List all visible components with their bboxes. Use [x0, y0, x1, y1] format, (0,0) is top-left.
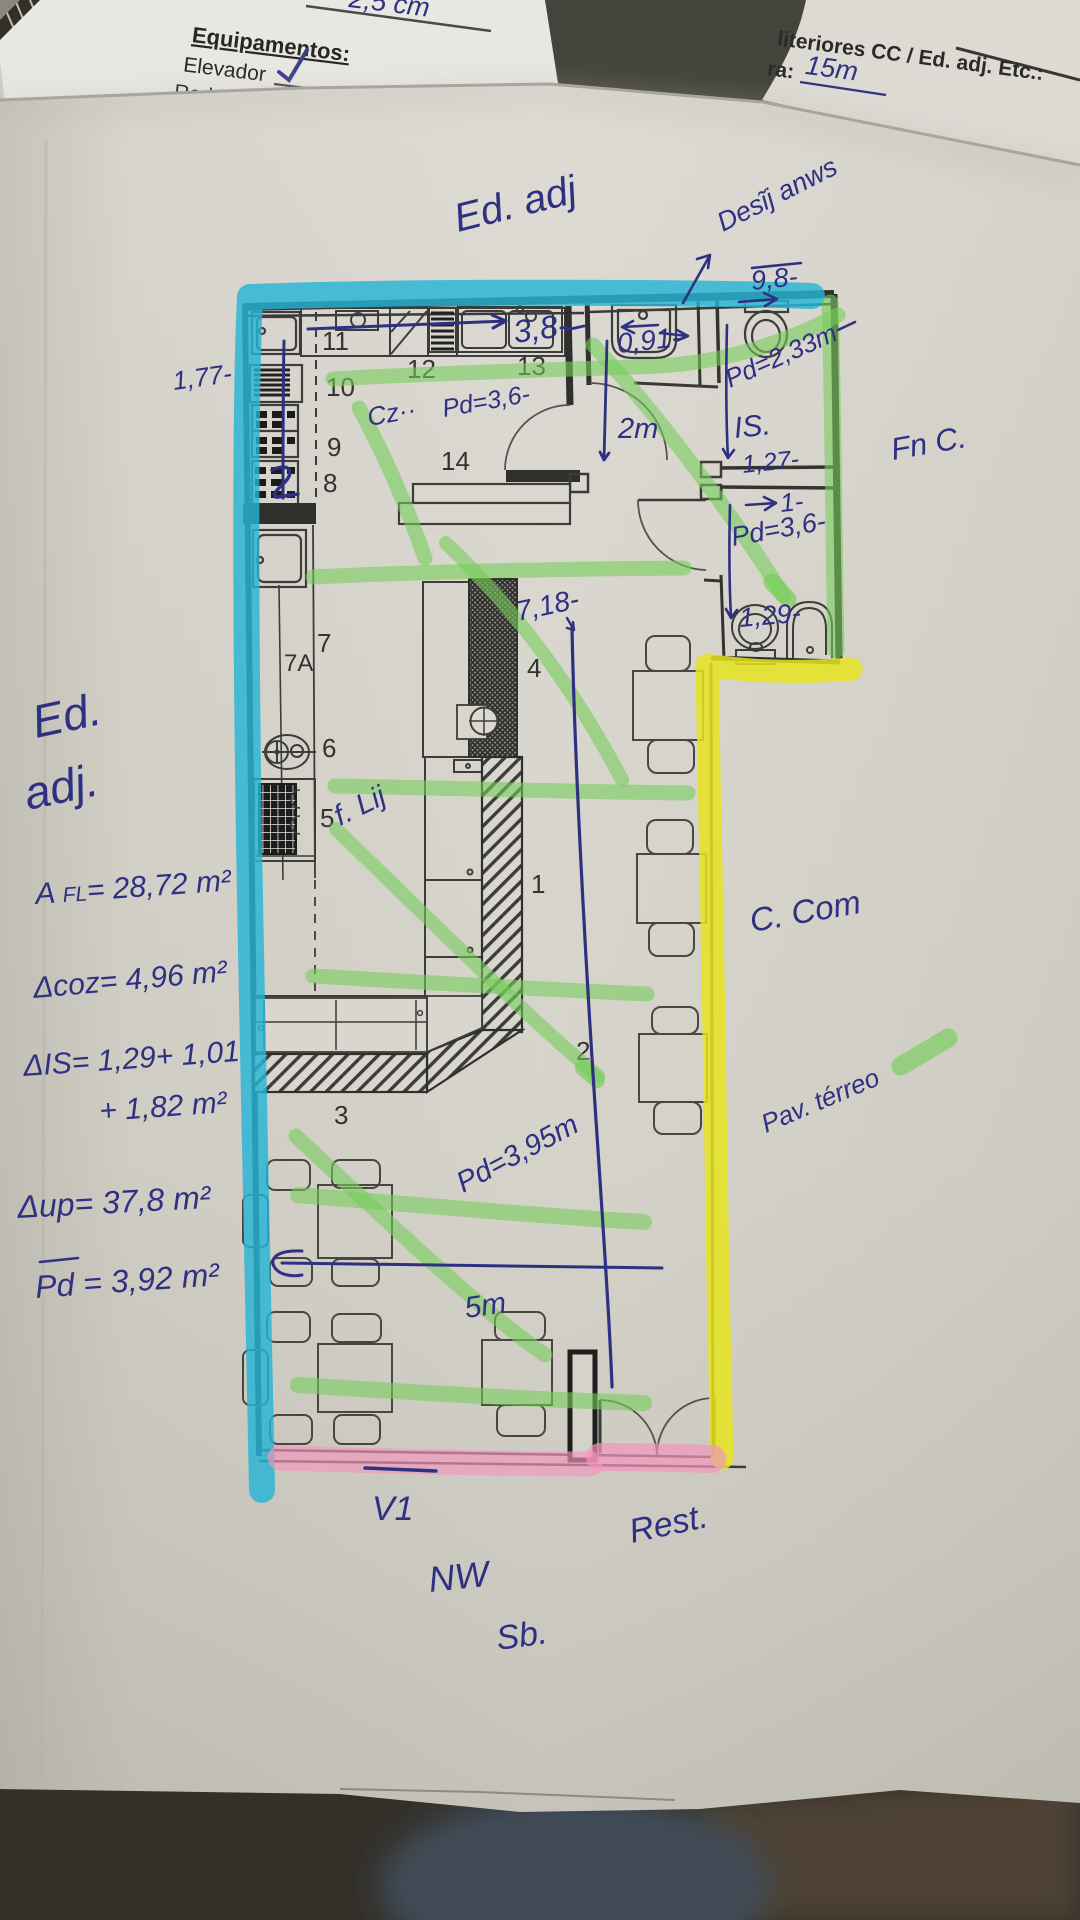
svg-text:V1: V1	[372, 1490, 414, 1528]
svg-text:IS.: IS.	[732, 408, 772, 445]
svg-text:Sb.: Sb.	[494, 1613, 550, 1658]
svg-text:1,29-: 1,29-	[738, 598, 802, 633]
svg-text:9: 9	[327, 432, 341, 462]
svg-text:NW: NW	[427, 1553, 494, 1600]
svg-text:2m: 2m	[617, 413, 658, 445]
svg-text:6: 6	[322, 733, 336, 763]
svg-text:3,8-: 3,8-	[511, 307, 571, 350]
svg-text:14: 14	[441, 446, 470, 476]
svg-text:7: 7	[317, 628, 331, 658]
svg-text:3: 3	[334, 1100, 348, 1130]
svg-text:1,27-: 1,27-	[741, 445, 801, 479]
svg-text:ra:: ra:	[766, 57, 796, 83]
svg-text:8: 8	[323, 468, 337, 498]
svg-text:7A: 7A	[284, 650, 313, 677]
svg-text:11: 11	[322, 326, 349, 356]
svg-text:1: 1	[531, 869, 545, 899]
svg-text:5m: 5m	[462, 1286, 508, 1324]
